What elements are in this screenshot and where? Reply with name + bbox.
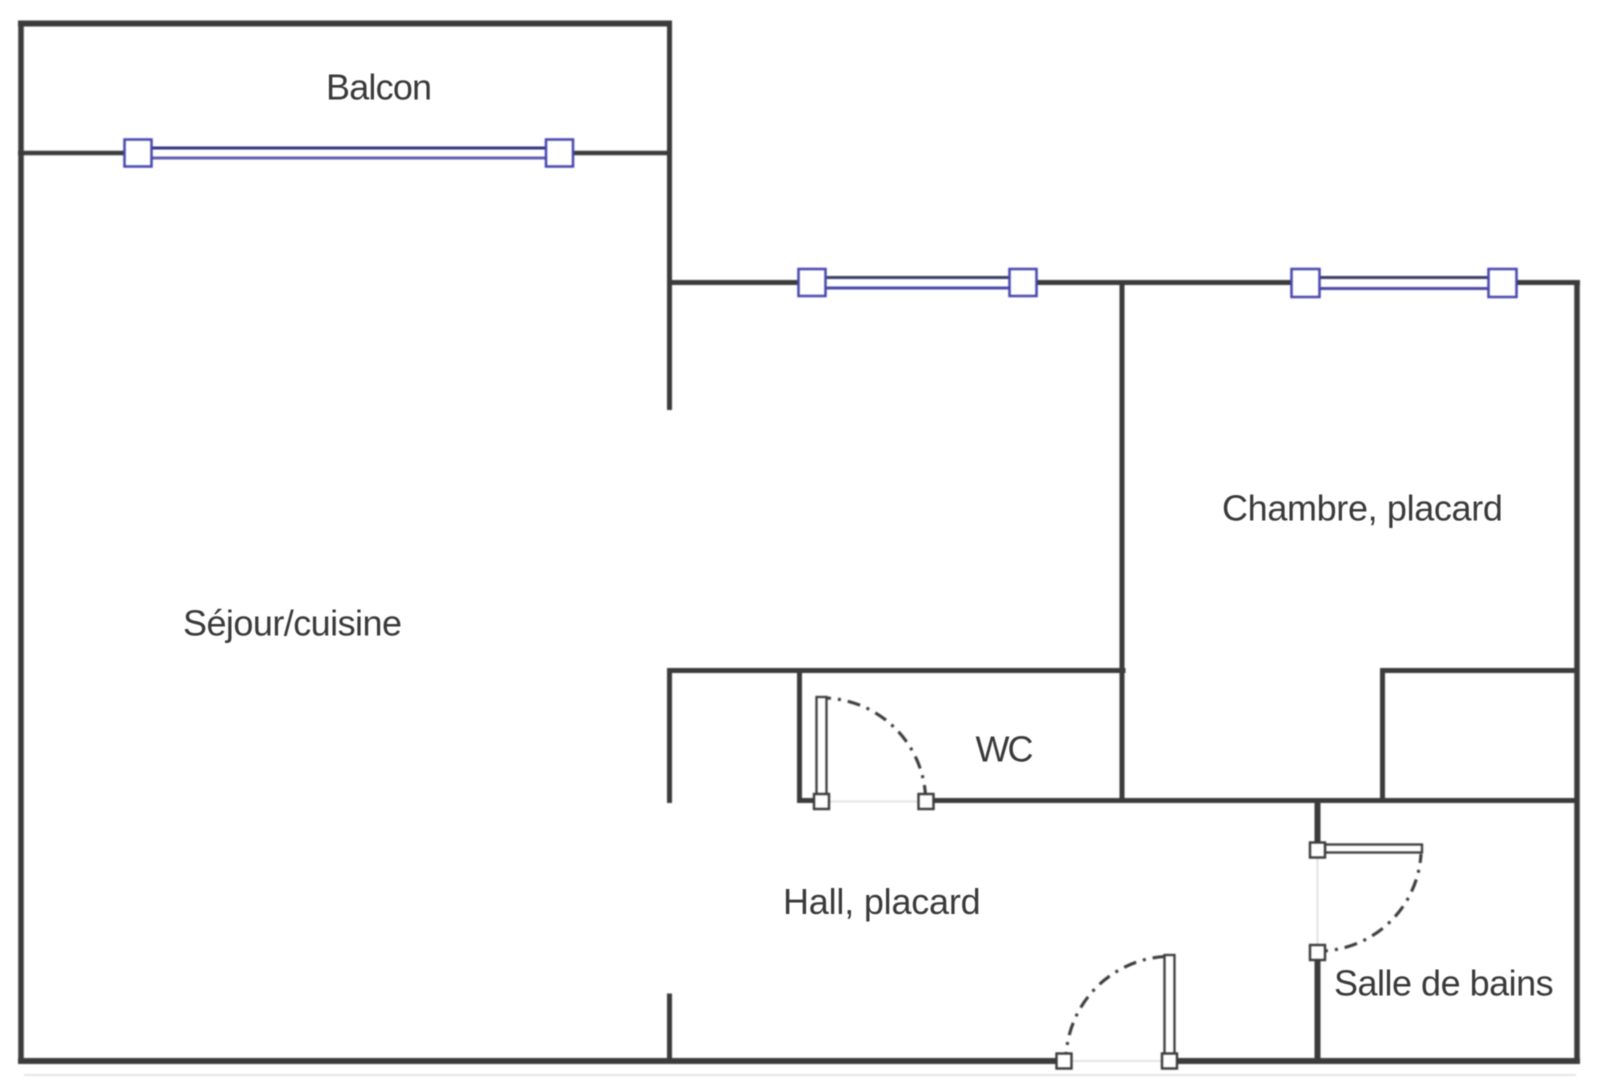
- svg-text:Balcon: Balcon: [326, 67, 431, 108]
- svg-text:Salle de bains: Salle de bains: [1334, 963, 1553, 1004]
- svg-text:Chambre, placard: Chambre, placard: [1222, 488, 1503, 529]
- svg-text:Hall, placard: Hall, placard: [783, 881, 981, 922]
- svg-text:WC: WC: [976, 729, 1033, 770]
- svg-text:Séjour/cuisine: Séjour/cuisine: [183, 603, 401, 644]
